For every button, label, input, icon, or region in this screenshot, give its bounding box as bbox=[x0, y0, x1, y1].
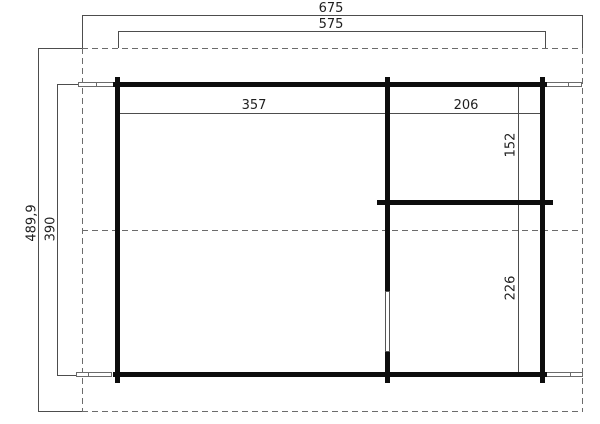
dim-label-total-depth: 489,9 bbox=[26, 204, 39, 241]
log-end-divider bbox=[570, 372, 571, 377]
dim-line-right-room-depths bbox=[518, 87, 519, 372]
wall-interior-vertical-upper bbox=[385, 77, 390, 291]
dim-tick-body-width-right bbox=[545, 31, 546, 48]
log-end-bottom-left bbox=[76, 372, 112, 377]
interior-door-opening bbox=[385, 291, 390, 352]
dim-label-right-room-top-depth: 152 bbox=[505, 133, 518, 158]
dim-label-left-room-width: 357 bbox=[224, 99, 284, 112]
wall-right bbox=[540, 77, 545, 383]
dim-tick-total-width-left bbox=[82, 15, 83, 48]
wall-back bbox=[113, 372, 547, 377]
roof-ridge-line bbox=[82, 230, 582, 231]
dim-tick-total-width-right bbox=[582, 15, 583, 48]
log-end-top-right bbox=[546, 82, 582, 87]
log-end-bottom-right bbox=[546, 372, 583, 377]
overhang-outline-bottom bbox=[82, 411, 582, 412]
log-end-top-left bbox=[78, 82, 114, 87]
dim-tick-total-depth-bottom bbox=[38, 411, 82, 412]
log-end-divider bbox=[96, 82, 97, 87]
dim-tick-total-depth-top bbox=[38, 48, 82, 49]
dim-label-right-room-width: 206 bbox=[436, 99, 496, 112]
wall-interior-vertical-lower bbox=[385, 352, 390, 383]
overhang-outline-right bbox=[582, 48, 583, 412]
overhang-outline-top bbox=[82, 48, 582, 49]
wall-interior-horizontal bbox=[377, 200, 553, 205]
log-end-divider bbox=[568, 82, 569, 87]
wall-front bbox=[113, 82, 547, 87]
floor-plan-drawing: 675 575 357 206 152 226 390 489,9 bbox=[0, 0, 600, 424]
dim-label-right-room-bottom-depth: 226 bbox=[505, 276, 518, 301]
dim-label-body-width: 575 bbox=[301, 18, 361, 31]
dim-tick-body-width-left bbox=[118, 31, 119, 48]
dim-label-total-width: 675 bbox=[301, 2, 361, 15]
wall-left bbox=[115, 77, 120, 383]
log-end-divider bbox=[88, 372, 89, 377]
dim-label-body-depth: 390 bbox=[45, 217, 58, 242]
dim-line-room-widths bbox=[120, 113, 540, 114]
